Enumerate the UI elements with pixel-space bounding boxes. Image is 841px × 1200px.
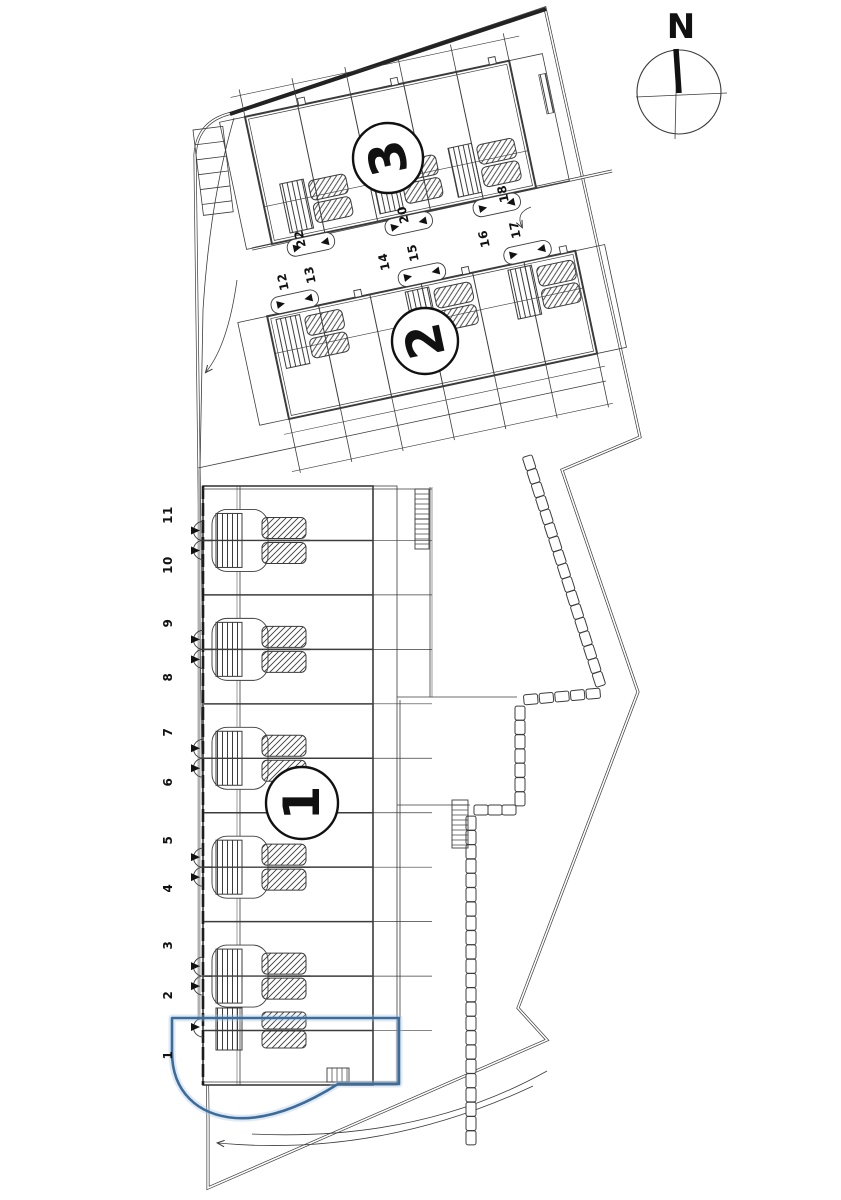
unit-label: 9 [161, 619, 175, 628]
site-plan-page: { "compass": { "label": "N" }, "badges":… [0, 0, 841, 1200]
unit-label: 2 [161, 991, 175, 1000]
unit-label: 15 [404, 243, 421, 263]
unit-label: 10 [161, 556, 175, 574]
building-1-badge: 1 [266, 767, 338, 839]
unit-label: 4 [161, 884, 175, 893]
building-1-number: 1 [273, 786, 331, 821]
unit-label: 8 [161, 673, 175, 682]
unit-label: 13 [301, 265, 318, 285]
unit-label: 12 [274, 272, 291, 292]
building-2-badge: 2 [392, 308, 458, 374]
unit-label: 16 [475, 229, 492, 249]
north-compass: N [636, 7, 727, 139]
unit-label: 17 [506, 220, 523, 240]
unit-label: 7 [161, 728, 175, 737]
unit-label: 11 [161, 506, 175, 524]
compass-needle-icon [676, 49, 679, 93]
site-plan-drawing: 3 2 1 11 10 9 8 7 6 5 4 3 2 1 22 20 18 1… [0, 0, 841, 1200]
unit-label: 3 [161, 941, 175, 950]
unit-label: 14 [375, 252, 392, 272]
unit-label: 1 [161, 1051, 175, 1060]
unit-labels-building-1: 11 10 9 8 7 6 5 4 3 2 1 [161, 506, 175, 1059]
unit-label: 6 [161, 778, 175, 787]
building-3-badge: 3 [353, 123, 423, 193]
entrance-arrow [206, 280, 237, 372]
north-label: N [667, 7, 695, 47]
unit-label: 5 [161, 836, 175, 845]
